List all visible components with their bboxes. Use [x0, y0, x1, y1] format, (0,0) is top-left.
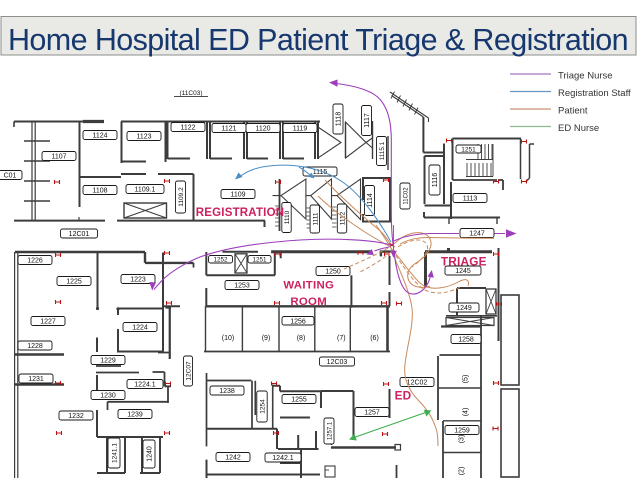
svg-text:11C02: 11C02: [404, 187, 410, 205]
svg-text:1251: 1251: [252, 257, 267, 264]
svg-text:Triage Nurse: Triage Nurse: [558, 71, 613, 82]
svg-text:(10): (10): [222, 335, 234, 342]
svg-text:1224: 1224: [132, 325, 148, 332]
svg-text:1230: 1230: [100, 393, 116, 400]
svg-text:1250: 1250: [325, 269, 341, 276]
svg-text:(11C03): (11C03): [179, 90, 202, 97]
svg-text:1255: 1255: [291, 397, 307, 404]
svg-text:1242: 1242: [225, 455, 241, 462]
svg-text:1226: 1226: [27, 258, 43, 265]
svg-text:1111: 1111: [312, 212, 319, 225]
svg-text:1249: 1249: [456, 305, 472, 312]
svg-text:1257: 1257: [364, 410, 380, 417]
svg-text:1245: 1245: [455, 268, 471, 275]
svg-text:1123: 1123: [136, 134, 151, 141]
svg-text:(3): (3): [459, 435, 466, 444]
svg-text:1115.1: 1115.1: [379, 141, 386, 160]
svg-text:1223: 1223: [130, 277, 146, 284]
svg-text:1256: 1256: [290, 319, 306, 326]
svg-text:(4): (4): [463, 408, 470, 417]
svg-text:(2): (2): [459, 467, 466, 476]
svg-text:1108: 1108: [92, 188, 107, 195]
svg-text:1242.1: 1242.1: [272, 455, 294, 462]
svg-text:1114: 1114: [367, 193, 374, 208]
svg-text:1257.1: 1257.1: [328, 421, 334, 440]
svg-text:12C07: 12C07: [186, 361, 193, 381]
svg-text:1247: 1247: [469, 231, 485, 238]
svg-text:(8): (8): [297, 335, 306, 342]
svg-text:1107: 1107: [51, 154, 66, 161]
svg-text:1109.2: 1109.2: [178, 187, 185, 207]
svg-text:C01: C01: [4, 173, 17, 180]
svg-text:1109: 1109: [230, 192, 245, 199]
svg-text:TRIAGE: TRIAGE: [441, 254, 487, 268]
svg-text:1239: 1239: [127, 412, 143, 419]
svg-text:ROOM: ROOM: [290, 296, 327, 308]
svg-text:1122: 1122: [180, 125, 195, 132]
svg-text:ED: ED: [395, 389, 412, 403]
svg-text:12C02: 12C02: [407, 380, 428, 387]
svg-text:1241.1: 1241.1: [112, 443, 119, 463]
svg-text:Home Hospital ED Patient Triag: Home Hospital ED Patient Triage & Regist…: [8, 23, 628, 57]
svg-text:1252: 1252: [213, 257, 228, 264]
svg-text:1229: 1229: [100, 358, 116, 365]
svg-text:1232: 1232: [68, 413, 84, 420]
svg-text:1117: 1117: [364, 113, 371, 128]
svg-text:(5): (5): [463, 375, 470, 384]
svg-text:WAITING: WAITING: [283, 280, 334, 292]
svg-text:1231: 1231: [28, 376, 44, 383]
svg-text:1253: 1253: [234, 283, 250, 290]
svg-text:(6): (6): [370, 335, 379, 342]
svg-text:(7): (7): [337, 335, 346, 342]
svg-text:1121: 1121: [221, 126, 236, 133]
svg-text:1225: 1225: [66, 279, 82, 286]
svg-text:1258: 1258: [458, 337, 474, 344]
svg-text:1118: 1118: [336, 112, 343, 127]
svg-text:1110: 1110: [284, 210, 291, 224]
svg-text:1116: 1116: [432, 173, 439, 188]
svg-text:Registration Staff: Registration Staff: [558, 88, 631, 99]
svg-text:1109.1: 1109.1: [135, 187, 156, 194]
svg-text:1227: 1227: [40, 319, 56, 326]
svg-text:(9): (9): [262, 335, 271, 342]
svg-text:1224.1: 1224.1: [134, 382, 156, 389]
svg-text:1259: 1259: [454, 428, 470, 435]
svg-text:Patient: Patient: [558, 106, 588, 117]
svg-text:1119: 1119: [293, 126, 308, 133]
svg-text:1228: 1228: [27, 343, 43, 350]
svg-text:1113: 1113: [463, 196, 478, 203]
svg-text:1238: 1238: [219, 388, 235, 395]
svg-text:1240: 1240: [147, 446, 154, 462]
svg-text:12C01: 12C01: [69, 231, 90, 238]
svg-text:1251: 1251: [461, 147, 476, 154]
svg-text:1254: 1254: [260, 399, 267, 414]
svg-text:REGISTRATION: REGISTRATION: [196, 207, 284, 219]
svg-text:12C03: 12C03: [327, 359, 348, 366]
svg-text:ED Nurse: ED Nurse: [558, 123, 599, 134]
svg-text:1124: 1124: [92, 133, 107, 140]
svg-text:1120: 1120: [255, 126, 270, 133]
